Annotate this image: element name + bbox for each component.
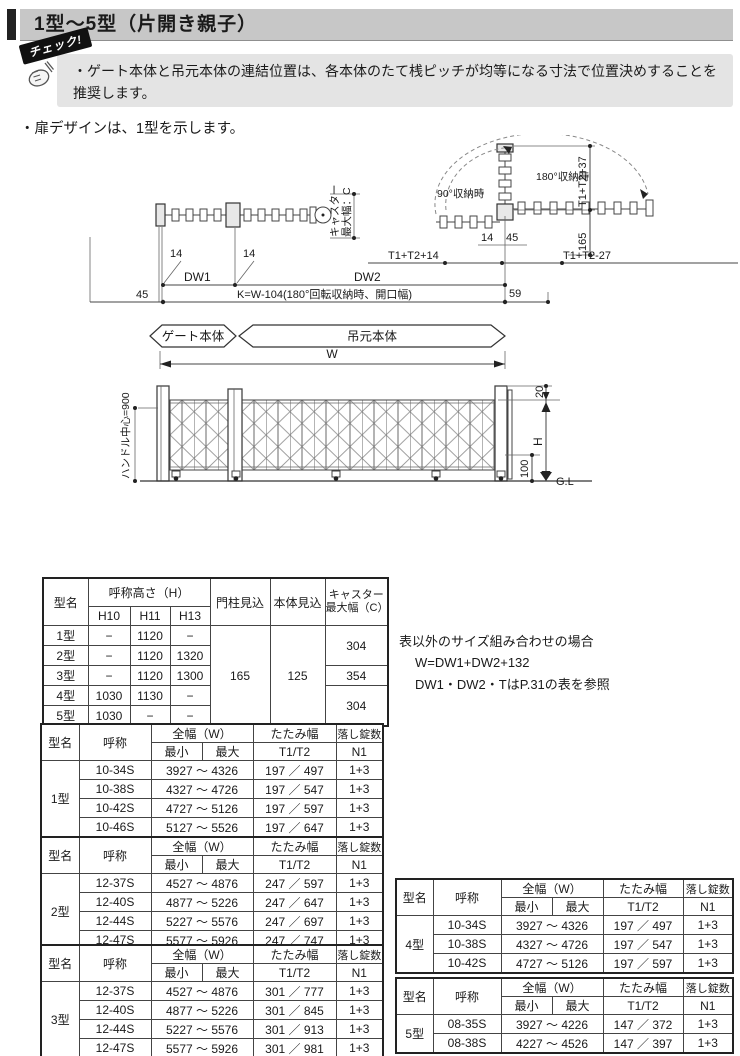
check-note: ・ゲート本体と吊元本体の連結位置は、各本体のたて桟ピッチが均等になる寸法で位置決… <box>57 54 733 107</box>
cell: 147 ／ 397 <box>603 1034 683 1054</box>
size-table-type4: 型名 呼称 全幅（W） たたみ幅 落し錠数 最小 最大 T1/T2 N1 4型 … <box>395 878 734 974</box>
col-header-model: 型名 <box>41 837 79 874</box>
cell: 301 ／ 845 <box>253 1001 336 1020</box>
col-header-min: 最小 <box>151 743 202 761</box>
page-header: 1型～5型（片開き親子） <box>20 9 733 41</box>
cell: 10-46S <box>79 818 151 838</box>
w-dimension: W <box>160 347 505 369</box>
col-header-n1: N1 <box>683 997 733 1015</box>
col-header-name: 呼称 <box>79 724 151 761</box>
banner-gate-body: ゲート本体 <box>162 330 225 344</box>
cell: 1+3 <box>336 912 383 931</box>
cell: 12-47S <box>79 1039 151 1056</box>
table-row: 1型 − 1120 − 165 125 304 <box>43 626 388 646</box>
cell: 1+3 <box>336 1039 383 1056</box>
cell: − <box>170 686 210 706</box>
size-combination-note: 表以外のサイズ組み合わせの場合 W=DW1+DW2+132 DW1・DW2・Tは… <box>399 631 610 695</box>
cell: 4527 ～ 4876 <box>151 982 253 1001</box>
cell: 1+3 <box>336 1020 383 1039</box>
cell: 12-40S <box>79 1001 151 1020</box>
table-row: 10-38S 4327 ～ 4726 197 ／ 547 1+3 <box>41 780 383 799</box>
cell: 301 ／ 777 <box>253 982 336 1001</box>
cell: 4型 <box>43 686 88 706</box>
cell: 197 ／ 547 <box>253 780 336 799</box>
plan-dimensions: T1+T2+37 165 T1+T2+14 T1+T2-27 14 45 14 … <box>90 144 738 304</box>
table-row: 10-42S 4727 ～ 5126 197 ／ 597 1+3 <box>396 954 733 974</box>
cell: 3927 ～ 4326 <box>501 916 603 935</box>
col-header-caster: キャスター最大幅（C） <box>325 578 388 626</box>
cell: 1+3 <box>336 818 383 838</box>
cell: 4227 ～ 4526 <box>501 1034 603 1054</box>
cell: 304 <box>325 626 388 666</box>
cell: 1120 <box>130 646 170 666</box>
col-header-width: 全幅（W） <box>151 724 253 743</box>
dim-dw2: DW2 <box>354 270 381 284</box>
col-header-height: 呼称高さ（H） <box>88 578 210 607</box>
size-table-type1: 型名 呼称 全幅（W） たたみ幅 落し錠数 最小 最大 T1/T2 N1 1型 … <box>40 723 384 838</box>
cell: 12-40S <box>79 893 151 912</box>
dim-t1t2-14: T1+T2+14 <box>388 250 439 262</box>
cell: 12-44S <box>79 1020 151 1039</box>
dim-20: 20 <box>534 386 546 398</box>
cell: 12-37S <box>79 982 151 1001</box>
check-note-text: ・ゲート本体と吊元本体の連結位置は、各本体のたて桟ピッチが均等になる寸法で位置決… <box>57 54 733 104</box>
col-header-t1t2: T1/T2 <box>253 743 336 761</box>
cell: 197 ／ 497 <box>253 761 336 780</box>
col-header-body-depth: 本体見込 <box>270 578 325 626</box>
cell: 125 <box>270 626 325 727</box>
dim-45-left: 45 <box>136 289 148 301</box>
casters <box>172 471 505 481</box>
section-banners: ゲート本体 吊元本体 <box>150 325 505 347</box>
col-header-max: 最大 <box>202 743 253 761</box>
cell: 5227 ～ 5576 <box>151 1020 253 1039</box>
col-header-width: 全幅（W） <box>151 945 253 964</box>
table-row: 10-42S 4727 ～ 5126 197 ／ 597 1+3 <box>41 799 383 818</box>
cell: 1+3 <box>683 1034 733 1054</box>
col-header-fold: たたみ幅 <box>603 978 683 997</box>
cell: 1120 <box>130 626 170 646</box>
col-header-name: 呼称 <box>433 978 501 1015</box>
cell: 1+3 <box>336 761 383 780</box>
cell: 10-38S <box>433 935 501 954</box>
col-header-model: 型名 <box>41 724 79 761</box>
table-row: 10-46S 5127 ～ 5526 197 ／ 647 1+3 <box>41 818 383 838</box>
dim-14-left: 14 <box>170 248 182 260</box>
cell: 08-38S <box>433 1034 501 1054</box>
col-header-fold: たたみ幅 <box>253 724 336 743</box>
col-header-n1: N1 <box>336 856 383 874</box>
col-header-min: 最小 <box>151 856 202 874</box>
size-table-type5: 型名 呼称 全幅（W） たたみ幅 落し錠数 最小 最大 T1/T2 N1 5型 … <box>395 977 734 1054</box>
dim-k-formula: K=W-104(180°回転収納時、開口幅) <box>237 288 412 301</box>
dim-dw1: DW1 <box>184 270 211 284</box>
dim-14-right: 14 <box>481 232 493 244</box>
dim-14-mid: 14 <box>243 248 255 260</box>
banner-hinge-body: 吊元本体 <box>347 330 398 344</box>
cell: 1120 <box>130 666 170 686</box>
storage-90-label: 90°収納時 <box>437 187 485 200</box>
cell: 12-44S <box>79 912 151 931</box>
col-header-min: 最小 <box>501 997 552 1015</box>
col-header-min: 最小 <box>501 898 552 916</box>
col-header-post-depth: 門柱見込 <box>210 578 270 626</box>
cell: 3927 ～ 4226 <box>501 1015 603 1034</box>
dim-handle-center: ハンドル中心=900 <box>119 392 132 479</box>
table-row: 12-44S 5227 ～ 5576 301 ／ 913 1+3 <box>41 1020 383 1039</box>
dim-w: W <box>326 347 338 361</box>
cell: 1+3 <box>336 982 383 1001</box>
cell: 4727 ～ 5126 <box>501 954 603 974</box>
cell: 12-37S <box>79 874 151 893</box>
dim-h: H <box>531 437 545 446</box>
cell: 1型 <box>43 626 88 646</box>
dim-t1t2-37: T1+T2+37 <box>577 156 589 207</box>
page-title: 1型～5型（片開き親子） <box>20 9 733 40</box>
cell: 4327 ～ 4726 <box>151 780 253 799</box>
cell: 5227 ～ 5576 <box>151 912 253 931</box>
col-header-t1t2: T1/T2 <box>603 898 683 916</box>
cell: 1300 <box>170 666 210 686</box>
cell: 5型 <box>396 1015 433 1054</box>
technical-drawing: キャスター 最大幅：C <box>0 135 740 520</box>
col-header-model: 型名 <box>396 879 433 916</box>
cell: 1型 <box>41 761 79 838</box>
col-header-fold: たたみ幅 <box>253 945 336 964</box>
col-header-n1: N1 <box>683 898 733 916</box>
col-header-name: 呼称 <box>79 837 151 874</box>
table-row: 2型 12-37S 4527 ～ 4876 247 ／ 597 1+3 <box>41 874 383 893</box>
cell: 3型 <box>43 666 88 686</box>
cell: 4877 ～ 5226 <box>151 893 253 912</box>
table-row: 1型 10-34S 3927 ～ 4326 197 ／ 497 1+3 <box>41 761 383 780</box>
caster-width-label: キャスター 最大幅：C <box>329 182 353 237</box>
cell: 1+3 <box>683 916 733 935</box>
col-header-t1t2: T1/T2 <box>253 964 336 982</box>
col-header-width: 全幅（W） <box>151 837 253 856</box>
hand-icon <box>24 57 58 91</box>
cell: 08-35S <box>433 1015 501 1034</box>
table-row: 3型 12-37S 4527 ～ 4876 301 ／ 777 1+3 <box>41 982 383 1001</box>
col-header-h10: H10 <box>88 607 130 626</box>
cell: 1+3 <box>683 1015 733 1034</box>
cell: 165 <box>210 626 270 727</box>
col-header-lock: 落し錠数 <box>336 724 383 743</box>
table-row: 5型 08-35S 3927 ～ 4226 147 ／ 372 1+3 <box>396 1015 733 1034</box>
cell: 301 ／ 913 <box>253 1020 336 1039</box>
cell: 2型 <box>43 646 88 666</box>
cell: 10-42S <box>433 954 501 974</box>
cell: 197 ／ 597 <box>253 799 336 818</box>
cell: 4327 ～ 4726 <box>501 935 603 954</box>
col-header-model: 型名 <box>43 578 88 626</box>
size-table-type3: 型名 呼称 全幅（W） たたみ幅 落し錠数 最小 最大 T1/T2 N1 3型 … <box>40 944 384 1056</box>
cell: 1030 <box>88 686 130 706</box>
cell: 247 ／ 697 <box>253 912 336 931</box>
cell: 1130 <box>130 686 170 706</box>
col-header-model: 型名 <box>396 978 433 1015</box>
cell: 1+3 <box>336 799 383 818</box>
cell: 3型 <box>41 982 79 1056</box>
cell: 197 ／ 497 <box>603 916 683 935</box>
cell: − <box>88 626 130 646</box>
cell: 301 ／ 981 <box>253 1039 336 1056</box>
cell: 1+3 <box>336 1001 383 1020</box>
table-row: 12-47S 5577 ～ 5926 301 ／ 981 1+3 <box>41 1039 383 1056</box>
table-row: 08-38S 4227 ～ 4526 147 ／ 397 1+3 <box>396 1034 733 1054</box>
cell: 1+3 <box>336 780 383 799</box>
dim-59: 59 <box>509 288 521 300</box>
table-row: 10-38S 4327 ～ 4726 197 ／ 547 1+3 <box>396 935 733 954</box>
cell: 4型 <box>396 916 433 974</box>
cell: 197 ／ 547 <box>603 935 683 954</box>
cell: 304 <box>325 686 388 727</box>
col-header-name: 呼称 <box>433 879 501 916</box>
col-header-max: 最大 <box>202 964 253 982</box>
col-header-width: 全幅（W） <box>501 879 603 898</box>
size-table-type2: 型名 呼称 全幅（W） たたみ幅 落し錠数 最小 最大 T1/T2 N1 2型 … <box>40 836 384 951</box>
col-header-n1: N1 <box>336 743 383 761</box>
dim-100: 100 <box>519 460 531 478</box>
col-header-fold: たたみ幅 <box>253 837 336 856</box>
cell: 1+3 <box>336 874 383 893</box>
cell: 10-34S <box>433 916 501 935</box>
cell: − <box>88 646 130 666</box>
col-header-lock: 落し錠数 <box>683 978 733 997</box>
spec-table: 型名 呼称高さ（H） 門柱見込 本体見込 キャスター最大幅（C） H10 H11… <box>42 577 389 727</box>
table-row: 12-44S 5227 ～ 5576 247 ／ 697 1+3 <box>41 912 383 931</box>
col-header-model: 型名 <box>41 945 79 982</box>
col-header-max: 最大 <box>552 898 603 916</box>
cell: 4527 ～ 4876 <box>151 874 253 893</box>
dim-t1t2-27: T1+T2-27 <box>563 250 611 262</box>
col-header-max: 最大 <box>552 997 603 1015</box>
cell: 2型 <box>41 874 79 951</box>
elevation-view: ハンドル中心=900 20 H 100 G.L <box>119 384 592 488</box>
cell: 4727 ～ 5126 <box>151 799 253 818</box>
cell: 10-42S <box>79 799 151 818</box>
col-header-h11: H11 <box>130 607 170 626</box>
note-line: W=DW1+DW2+132 <box>399 652 610 673</box>
cell: 1+3 <box>683 935 733 954</box>
cell: 10-38S <box>79 780 151 799</box>
col-header-max: 最大 <box>202 856 253 874</box>
col-header-n1: N1 <box>336 964 383 982</box>
col-header-lock: 落し錠数 <box>336 945 383 964</box>
ground-level-label: G.L <box>556 476 574 488</box>
note-line: DW1・DW2・TはP.31の表を参照 <box>399 674 610 695</box>
col-header-name: 呼称 <box>79 945 151 982</box>
cell: 4877 ～ 5226 <box>151 1001 253 1020</box>
col-header-h13: H13 <box>170 607 210 626</box>
cell: 197 ／ 647 <box>253 818 336 838</box>
cell: 147 ／ 372 <box>603 1015 683 1034</box>
cell: 247 ／ 647 <box>253 893 336 912</box>
col-header-t1t2: T1/T2 <box>603 997 683 1015</box>
cell: 247 ／ 597 <box>253 874 336 893</box>
cell: 10-34S <box>79 761 151 780</box>
catalog-page: 1型～5型（片開き親子） ・ゲート本体と吊元本体の連結位置は、各本体のたて桟ピッ… <box>0 0 740 1056</box>
cell: 1+3 <box>336 893 383 912</box>
cell: − <box>170 626 210 646</box>
col-header-fold: たたみ幅 <box>603 879 683 898</box>
col-header-lock: 落し錠数 <box>336 837 383 856</box>
table-row: 12-40S 4877 ～ 5226 247 ／ 647 1+3 <box>41 893 383 912</box>
header-accent-bar <box>7 9 16 40</box>
cell: 1+3 <box>683 954 733 974</box>
cell: − <box>88 666 130 686</box>
col-header-lock: 落し錠数 <box>683 879 733 898</box>
dim-45-right: 45 <box>506 232 518 244</box>
cell: 1320 <box>170 646 210 666</box>
col-header-width: 全幅（W） <box>501 978 603 997</box>
dim-165: 165 <box>577 233 589 251</box>
cell: 3927 ～ 4326 <box>151 761 253 780</box>
col-header-min: 最小 <box>151 964 202 982</box>
table-row: 12-40S 4877 ～ 5226 301 ／ 845 1+3 <box>41 1001 383 1020</box>
col-header-t1t2: T1/T2 <box>253 856 336 874</box>
table-row: 4型 10-34S 3927 ～ 4326 197 ／ 497 1+3 <box>396 916 733 935</box>
cell: 5127 ～ 5526 <box>151 818 253 838</box>
cell: 5577 ～ 5926 <box>151 1039 253 1056</box>
cell: 354 <box>325 666 388 686</box>
cell: 197 ／ 597 <box>603 954 683 974</box>
note-line: 表以外のサイズ組み合わせの場合 <box>399 631 610 652</box>
